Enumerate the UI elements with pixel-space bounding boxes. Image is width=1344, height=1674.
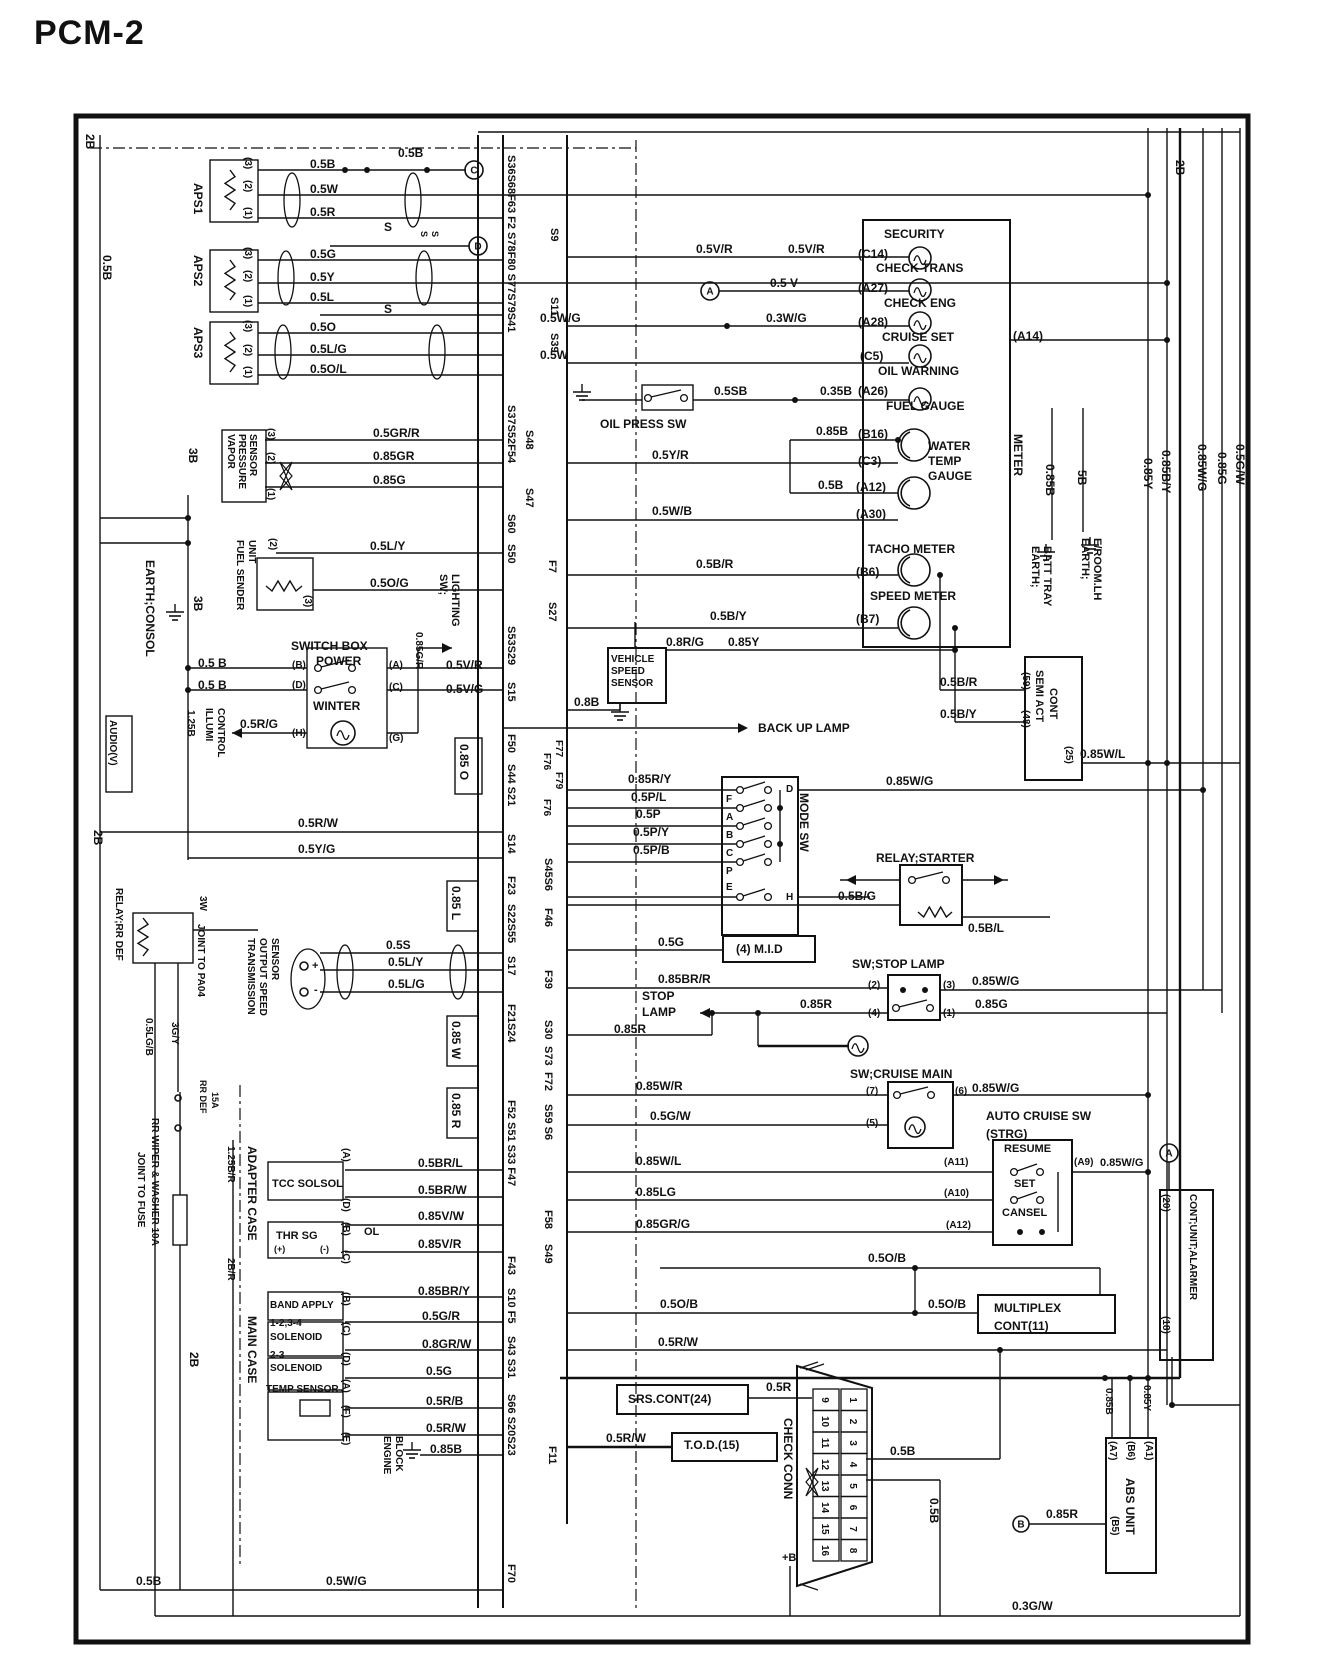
component-label: D xyxy=(786,784,793,795)
component-label: F39 xyxy=(542,970,554,989)
arrow-icon xyxy=(994,875,1004,885)
wire-label: 0.3G/W xyxy=(1012,1599,1053,1613)
wire-label: 0.85W/L xyxy=(636,1154,681,1168)
check-conn-pin-number: 3 xyxy=(847,1440,858,1446)
wire-label: 0.5R/W xyxy=(426,1421,467,1435)
wire-label: 0.85BR/Y xyxy=(418,1284,470,1298)
wire-label: 0.5G/R xyxy=(422,1309,460,1323)
component-label: S36S68F63 F2 S78F80 S77S79S41 xyxy=(505,155,517,332)
wire-label: 0.85BR/R xyxy=(658,972,711,986)
component-label: S10 F5 xyxy=(505,1288,517,1323)
wire-label: (1) xyxy=(265,488,276,500)
wire-label: 0.85W/G xyxy=(972,1081,1019,1095)
wire-label: 0.5V/R xyxy=(788,242,825,256)
wire-label: (4) xyxy=(868,1008,880,1019)
junction-dot xyxy=(364,167,370,173)
component-label: UNIT xyxy=(246,540,257,563)
wire-label: (A) xyxy=(389,660,403,671)
wire-label: (3) xyxy=(242,247,253,259)
switch-blade xyxy=(743,854,765,861)
junction-dot xyxy=(922,987,928,993)
component-label: AUDIO(V) xyxy=(107,720,118,766)
component-label: AUTO CRUISE SW xyxy=(986,1109,1092,1123)
wire-label: 0.85G/R xyxy=(413,632,424,670)
wire-label: 0.5O/B xyxy=(868,1251,906,1265)
wire-label: 0.85Y xyxy=(1141,458,1155,489)
check-conn-pin-number: 4 xyxy=(847,1462,858,1468)
component-label: SRS.CONT(24) xyxy=(628,1392,711,1406)
component-label: JOINT TO PA04 xyxy=(195,924,206,997)
junction-dot xyxy=(952,625,958,631)
wire-label: (A27) xyxy=(858,281,888,295)
wire-label: 0.5B/Y xyxy=(940,707,977,721)
component-label: CHECK TRANS xyxy=(876,261,963,275)
switch-contact xyxy=(765,859,772,866)
component-label: S50 xyxy=(505,544,517,564)
component-label: S47 xyxy=(523,488,535,508)
component-box xyxy=(900,865,962,925)
wire-label: (A) xyxy=(340,1148,351,1162)
component-label: F xyxy=(726,794,732,805)
component-label: S27 xyxy=(546,602,558,622)
check-conn-pin-number: 13 xyxy=(819,1480,830,1492)
wire-label: 0.85W/G xyxy=(1100,1157,1143,1169)
switch-contact xyxy=(349,687,356,694)
wire-label: - xyxy=(314,984,318,996)
wire-label: (2) xyxy=(242,180,253,192)
switch-blade xyxy=(743,836,765,843)
component-label: S43 S31 xyxy=(505,1336,517,1378)
component-label: SWITCH BOX xyxy=(291,639,368,653)
wire-label: (1) xyxy=(943,1008,955,1019)
wire-label: 0.5L xyxy=(310,290,334,304)
wire-label: 2B xyxy=(1173,160,1187,176)
wire-label: 0.35B xyxy=(820,384,852,398)
wire-label: 3B xyxy=(186,448,200,464)
wire-label: 0.85B xyxy=(1043,464,1057,496)
wire-label: (3) xyxy=(242,320,253,332)
component-label: TACHO METER xyxy=(868,542,955,556)
wire-label: 0.5R/G xyxy=(240,717,278,731)
wire-label: (C14) xyxy=(858,247,888,261)
wire-label: 0.5O/G xyxy=(370,576,409,590)
wire-label: (2) xyxy=(242,270,253,282)
lamp-filament xyxy=(852,1044,864,1053)
check-conn-pin-number: 7 xyxy=(847,1526,858,1532)
component-label: CONT xyxy=(1047,688,1059,719)
wire-label: (B) xyxy=(340,1222,351,1236)
wire-label: S xyxy=(419,231,429,237)
component-label: F46 xyxy=(542,908,554,927)
wire-label: (5) xyxy=(866,1118,878,1129)
component-label: RESUME xyxy=(1004,1143,1051,1155)
wire-label: (3) xyxy=(265,428,276,440)
wire-label: (C) xyxy=(389,682,403,693)
wire-label: (B5) xyxy=(1109,1516,1120,1535)
junction-dot xyxy=(185,540,191,546)
wire-label: 0.5G/W xyxy=(650,1109,691,1123)
junction-dot xyxy=(997,1347,1003,1353)
connector-ref-letter: A xyxy=(706,287,713,298)
junction-dot xyxy=(952,647,958,653)
wire-label: 0.85W/L xyxy=(1080,747,1125,761)
component-label: FUEL SENDER xyxy=(234,540,245,611)
wire-label: 0.5O xyxy=(310,320,336,334)
component-box xyxy=(1160,1190,1213,1360)
wire-label: 0.5B xyxy=(818,478,844,492)
wire-label: (H) xyxy=(292,728,306,739)
component-label: C xyxy=(726,848,733,859)
component-label: TCC SOLSOL xyxy=(272,1178,343,1190)
wire-label: (A7) xyxy=(1107,1441,1118,1460)
wire-label: 0.85W/G xyxy=(886,774,933,788)
wire-label: 0.5Y/R xyxy=(652,448,689,462)
lamp-filament xyxy=(909,1125,921,1134)
component-label: WATER xyxy=(928,439,971,453)
component-label: SPEED xyxy=(611,666,645,677)
check-conn-pin-number: 9 xyxy=(819,1397,830,1403)
wire-label: 0.5B xyxy=(136,1574,162,1588)
component-label: SPEED METER xyxy=(870,589,956,603)
junction-dot xyxy=(1145,1092,1151,1098)
component-label: SENSOR xyxy=(247,434,258,477)
component-label: S30 xyxy=(542,1020,554,1040)
wire-label: 1.25B/R xyxy=(225,1146,236,1183)
wire-label: 0.5L/G xyxy=(310,342,347,356)
junction-dot xyxy=(724,323,730,329)
component-label: GAUGE xyxy=(928,469,972,483)
wire-label: (2) xyxy=(868,980,880,991)
switch-contact xyxy=(737,823,744,830)
switch-contact xyxy=(765,841,772,848)
resistor xyxy=(266,581,302,591)
junction-dot xyxy=(900,987,906,993)
component-label: BATT TRAY xyxy=(1041,546,1053,607)
check-conn-pin-number: 16 xyxy=(819,1545,830,1557)
shield-oval xyxy=(278,251,294,305)
wire-label: OL xyxy=(364,1226,380,1238)
wire-label: 0.8B xyxy=(574,695,600,709)
component-label: S60 xyxy=(505,514,517,534)
wire-label: (B) xyxy=(292,660,306,671)
wire-label: 0.5G xyxy=(310,247,336,261)
switch-blade xyxy=(915,872,943,879)
switch-contact xyxy=(1037,1197,1044,1204)
check-conn-pin-number: 1 xyxy=(847,1397,858,1403)
schematic-canvas: CDAAB911021131241351461571682B0.5BAPS1AP… xyxy=(0,0,1344,1674)
check-conn-pin-number: 15 xyxy=(819,1523,830,1535)
wire-label: 0.5W/G xyxy=(540,311,581,325)
wire-label: 0.5B xyxy=(927,1498,941,1524)
wire-label: (D) xyxy=(340,1198,351,1212)
wire-label: 0.5B/R xyxy=(696,557,734,571)
component-label: EARTH; xyxy=(1079,538,1091,580)
component-label: F52 S51 S33 F47 xyxy=(505,1100,517,1186)
component-label: FUEL GAUGE xyxy=(886,399,964,413)
arrow-icon xyxy=(846,875,856,885)
wire-label: 0.5LG/B xyxy=(143,1018,154,1056)
wire-label: (2) xyxy=(265,452,276,464)
switch-contact xyxy=(681,395,688,402)
wire-label: (E) xyxy=(340,1432,351,1445)
wire-label: 0.5L/Y xyxy=(388,955,423,969)
component-label: CRUISE SET xyxy=(882,330,955,344)
component-label: EARTH;CONSOL xyxy=(143,560,157,657)
wire-label: 0.5 B xyxy=(198,678,227,692)
wire-label: (C3) xyxy=(858,454,881,468)
component-label: CONTROL xyxy=(215,708,226,757)
component-label: WINTER xyxy=(313,699,361,713)
junction-dot xyxy=(1164,760,1170,766)
wire-label: 0.5L/Y xyxy=(370,539,405,553)
component-label: JOINT TO FUSE xyxy=(135,1152,146,1228)
wire-label: 3B xyxy=(191,596,205,612)
wire-label: 0.5GR/R xyxy=(373,426,420,440)
wire-label: 0.5G/W xyxy=(1233,444,1247,485)
component-label: S73 xyxy=(542,1046,554,1066)
wire-label: (B6) xyxy=(856,565,879,579)
wire-label: (20) xyxy=(1160,1194,1171,1212)
wire-label: 0.5V/G xyxy=(446,682,483,696)
wire-label: 0.8GR/W xyxy=(422,1337,472,1351)
check-conn-pin-number: 8 xyxy=(847,1548,858,1554)
wire-label: 0.5L/G xyxy=(388,977,425,991)
wire-label: 0.5SB xyxy=(714,384,748,398)
wire-label: 0.5BR/L xyxy=(418,1156,463,1170)
check-conn-pin-number: 12 xyxy=(819,1459,830,1471)
wire-label: (A10) xyxy=(944,1188,969,1199)
junction-dot xyxy=(1102,1375,1108,1381)
wire-label: (1) xyxy=(242,366,253,378)
lamp-icon xyxy=(331,721,355,745)
wire-label: 0.85GR/G xyxy=(636,1217,690,1231)
component-label: F21S24 xyxy=(505,1004,517,1043)
switch-contact xyxy=(765,805,772,812)
wire-label: (+) xyxy=(274,1244,285,1254)
component-label: S9 xyxy=(548,228,560,241)
arrow-icon xyxy=(738,723,748,733)
component-box xyxy=(300,1400,330,1416)
component-label: BLOCK xyxy=(393,1436,404,1472)
component-label: METER xyxy=(1011,434,1025,476)
wire-label: (B) xyxy=(340,1292,351,1306)
wire-label: 0.85G xyxy=(975,997,1008,1011)
arrow-icon xyxy=(442,643,452,653)
wire-label: (A9) xyxy=(1074,1157,1093,1168)
junction-dot xyxy=(1169,1402,1175,1408)
junction-dot xyxy=(912,1310,918,1316)
component-label: T.O.D.(15) xyxy=(684,1438,739,1452)
wire-label: 0.5R/W xyxy=(298,816,339,830)
junction-dot xyxy=(185,665,191,671)
wire-label: 0.5O/L xyxy=(310,362,347,376)
switch-contact xyxy=(765,787,772,794)
wire-label: 2B xyxy=(83,134,97,150)
lamp-icon xyxy=(905,1117,925,1137)
component-label: BAND APPLY xyxy=(270,1300,334,1311)
component-label: MAIN CASE xyxy=(245,1316,259,1383)
wire-label: 0.85R/Y xyxy=(628,772,671,786)
connector-ref-letter: A xyxy=(1165,1149,1172,1160)
junction-dot xyxy=(1145,760,1151,766)
wire-label: 0.3W/G xyxy=(766,311,807,325)
component-label: EARTH; xyxy=(1029,546,1041,588)
wire-label: (B6) xyxy=(1125,1441,1136,1460)
component-label: P xyxy=(726,866,733,877)
switch-contact xyxy=(927,1005,934,1012)
component-label: OIL PRESS SW xyxy=(600,417,687,431)
resistor xyxy=(225,260,235,300)
connector-ref-letter: D xyxy=(474,242,481,253)
wire-label: 0.5 B xyxy=(198,656,227,670)
wire-label: 2-3 xyxy=(270,1350,285,1361)
component-label: TRANSMISSION xyxy=(245,938,256,1015)
gauge-icon xyxy=(898,429,930,461)
wire-label: (A14) xyxy=(1013,329,1043,343)
gauge-needle xyxy=(901,480,910,506)
wiring-diagram-page: PCM-2 CDAAB911021131241351461571682B0.5B… xyxy=(0,0,1344,1674)
wire-label: (3) xyxy=(943,980,955,991)
wire-label: 0.5V/R xyxy=(696,242,733,256)
wire-label: (A28) xyxy=(858,315,888,329)
wire-label: 5B xyxy=(1075,470,1089,486)
wire-label: (B16) xyxy=(858,427,888,441)
wire-label: (A30) xyxy=(856,507,886,521)
resistor xyxy=(918,907,952,917)
wire-label: (G) xyxy=(389,733,403,744)
junction-dot xyxy=(1145,1169,1151,1175)
wire-label: 0.85R xyxy=(614,1022,646,1036)
switch-blade xyxy=(900,1087,928,1094)
lamp-filament xyxy=(914,321,926,330)
wire-label: 0.5P/Y xyxy=(633,825,669,839)
wire-label: (18) xyxy=(1160,1316,1171,1334)
wire-label: 0.5O/B xyxy=(928,1297,966,1311)
junction-dot xyxy=(185,687,191,693)
wire-label: 0.5B/R xyxy=(940,675,978,689)
arrow-icon xyxy=(700,1008,710,1018)
component-label: S15 xyxy=(505,682,517,702)
component-label: APS2 xyxy=(191,255,205,287)
component-label: APS3 xyxy=(191,327,205,359)
component-label: LIGHTING xyxy=(449,574,461,627)
switch-blade xyxy=(743,818,765,825)
component-box xyxy=(993,1140,1072,1245)
wire-label: 0.85Y xyxy=(1141,1385,1152,1411)
component-label: CHECK ENG xyxy=(884,296,956,310)
wire-label: (A12) xyxy=(946,1220,971,1231)
wire-label: 0.5Y xyxy=(310,270,335,284)
component-label: SW;CRUISE MAIN xyxy=(850,1067,952,1081)
wire-label: (-) xyxy=(320,1244,329,1254)
wire-label: 0.5W/G xyxy=(326,1574,367,1588)
switch-contact xyxy=(737,787,744,794)
wire-label: + xyxy=(312,960,318,972)
wire-label: 0.5P/L xyxy=(631,790,666,804)
wire-label: 0.5P xyxy=(636,807,661,821)
check-conn-pin-number: 6 xyxy=(847,1505,858,1511)
wire-label: 0.85 O xyxy=(457,744,471,780)
junction-dot xyxy=(895,437,901,443)
pin-circle xyxy=(300,988,308,996)
junction-dot xyxy=(1164,337,1170,343)
switch-blade xyxy=(899,1000,927,1007)
junction-dot xyxy=(937,572,943,578)
shield-oval xyxy=(405,173,421,227)
switch-blade xyxy=(321,682,349,689)
wire-label: (4) M.I.D xyxy=(736,942,783,956)
switch-contact xyxy=(1037,1169,1044,1176)
component-label: SET xyxy=(1014,1178,1036,1190)
junction-dot xyxy=(342,167,348,173)
component-label: S49 xyxy=(542,1244,554,1264)
component-label: F58 xyxy=(542,1210,554,1229)
wire-label: 0.85V/R xyxy=(418,1237,462,1251)
switch-contact xyxy=(645,395,652,402)
wire-label: 0.85 R xyxy=(449,1093,463,1129)
component-box xyxy=(888,975,940,1020)
connector-ref-letter: B xyxy=(1017,1520,1024,1531)
wire-label: (59) xyxy=(1020,672,1031,690)
wire-label: S xyxy=(384,220,392,234)
component-label: SW;STOP LAMP xyxy=(852,957,945,971)
component-label: E/ROOM.LH xyxy=(1091,538,1103,600)
component-label: CHECK CONN xyxy=(781,1418,795,1499)
wire-label: 0.5Y/G xyxy=(298,842,335,856)
check-conn-pin-number: 2 xyxy=(847,1419,858,1425)
component-label: S53S29 xyxy=(505,626,517,665)
wire-label: (48) xyxy=(1020,710,1031,728)
component-label: F7 xyxy=(546,560,558,573)
component-label: CONT(11) xyxy=(994,1319,1049,1333)
component-label: PRESSURE xyxy=(236,434,247,489)
wire-label: 0.5P/B xyxy=(633,843,670,857)
switch-contact xyxy=(1011,1169,1018,1176)
wire-label: 0.85GR xyxy=(373,449,415,463)
component-label: S44 S21 xyxy=(505,764,517,806)
wire-label: 0.85R xyxy=(1046,1507,1078,1521)
junction-dot xyxy=(777,841,783,847)
switch-blade xyxy=(743,889,765,896)
junction-dot xyxy=(777,805,783,811)
switch-contact xyxy=(909,877,916,884)
component-label: SENSOR xyxy=(269,938,280,981)
component-label: SW; xyxy=(437,574,449,595)
component-label: TEMP xyxy=(928,454,961,468)
check-conn-pin-number: 10 xyxy=(819,1416,830,1428)
wire-label: (C) xyxy=(340,1250,351,1264)
junction-dot xyxy=(424,167,430,173)
switch-contact xyxy=(894,1092,901,1099)
component-label: F77 xyxy=(553,740,564,758)
junction-dot xyxy=(185,515,191,521)
wire-label: S xyxy=(430,231,440,237)
wire-label: (3) xyxy=(242,157,253,169)
hatch-line xyxy=(800,1584,818,1590)
wire-label: 1-2,3-4 xyxy=(270,1318,302,1329)
check-conn-pin-number: 11 xyxy=(819,1438,830,1449)
component-label: F70 xyxy=(505,1564,517,1583)
component-label: CONT;UNIT;ALARMER xyxy=(1187,1194,1198,1301)
junction-dot xyxy=(755,1010,761,1016)
wire-label: 0.5R/W xyxy=(658,1335,699,1349)
wire-label: (A12) xyxy=(856,480,886,494)
wire-label: 0.85G xyxy=(1215,452,1229,485)
wire-label: (A1) xyxy=(1143,1441,1154,1460)
wire-label: (2) xyxy=(267,538,278,550)
switch-contact xyxy=(737,859,744,866)
component-label: SENSOR xyxy=(611,678,654,689)
